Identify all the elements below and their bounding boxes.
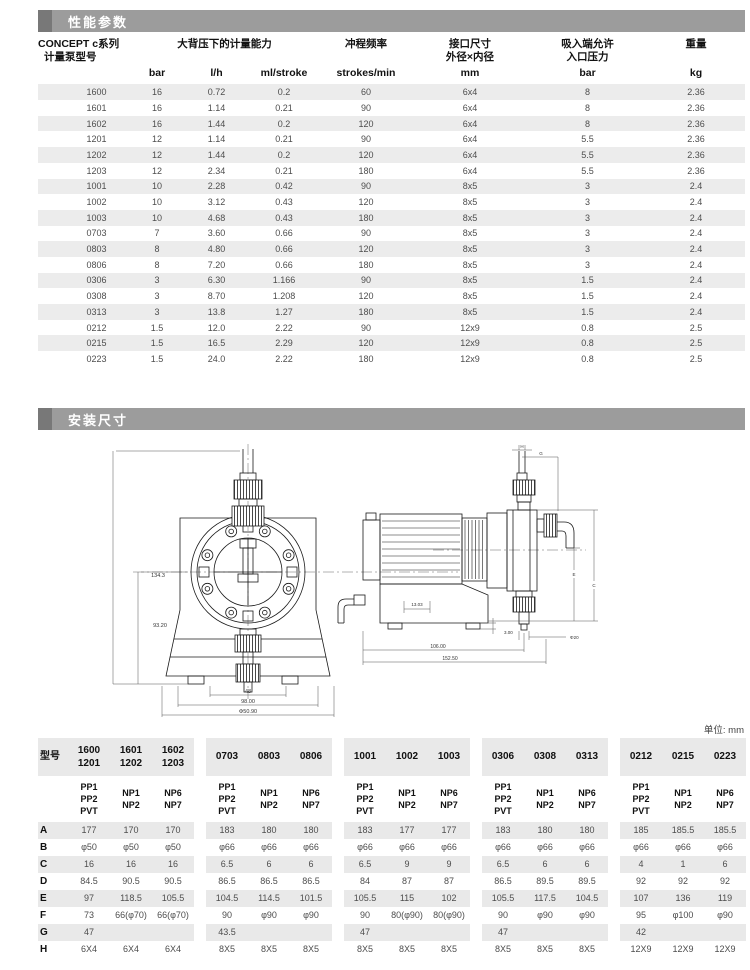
- perf-value-cell: 10: [129, 210, 185, 226]
- dim-material-cell: NP6 NP7: [704, 776, 746, 822]
- dim-value-cell: 180: [524, 822, 566, 839]
- dim-table-row: A177170170183180180183177177183180180185…: [38, 822, 746, 839]
- perf-value-cell: 2.34: [185, 163, 248, 179]
- perf-value-cell: 2.36: [647, 100, 745, 116]
- perf-model-cell: 0212: [38, 320, 129, 336]
- dim-table-row: PP1 PP2 PVTNP1 NP2NP6 NP7PP1 PP2 PVTNP1 …: [38, 776, 746, 822]
- perf-table-row: 1001102.280.42908x532.4: [38, 179, 745, 195]
- dim-table-row: C1616166.5666.5996.566416: [38, 856, 746, 873]
- dim-value-cell: 73: [68, 907, 110, 924]
- dim-table-row: F7366(φ70)66(φ70)90φ90φ909080(φ90)80(φ90…: [38, 907, 746, 924]
- column-gap: [194, 941, 206, 958]
- perf-value-cell: 2.36: [647, 116, 745, 132]
- perf-table-row: 0313313.81.271808x51.52.4: [38, 304, 745, 320]
- perf-stroke-header: 冲程频率: [320, 36, 412, 66]
- performance-section-title: 性能参数: [52, 12, 128, 31]
- dim-model-cell: 1003: [428, 738, 470, 776]
- perf-value-cell: 4.68: [185, 210, 248, 226]
- perf-value-cell: 120: [320, 335, 412, 351]
- dim-value-cell: [110, 924, 152, 941]
- unit-bar2: bar: [528, 66, 647, 84]
- section-header-installation: 安装尺寸: [38, 408, 745, 430]
- perf-value-cell: 12: [129, 131, 185, 147]
- dim-model-cell: 0308: [524, 738, 566, 776]
- perf-value-cell: 8x5: [412, 304, 528, 320]
- perf-value-cell: 7.20: [185, 257, 248, 273]
- column-gap: [194, 822, 206, 839]
- perf-value-cell: 5.5: [528, 131, 647, 147]
- dim-material-cell: NP6 NP7: [566, 776, 608, 822]
- dim-value-cell: 114.5: [248, 890, 290, 907]
- perf-value-cell: 0.66: [248, 241, 320, 257]
- perf-table-row: 02231.524.02.2218012x90.82.5: [38, 351, 745, 367]
- perf-value-cell: 2.36: [647, 147, 745, 163]
- perf-value-cell: 180: [320, 304, 412, 320]
- dim-value-cell: 47: [344, 924, 386, 941]
- dim-value-cell: 185.5: [662, 822, 704, 839]
- dim-label-body-length: 106.00: [430, 644, 446, 650]
- dim-value-cell: 6: [566, 856, 608, 873]
- perf-value-cell: 1.208: [248, 288, 320, 304]
- column-gap: [608, 738, 620, 776]
- dim-label-feet-width: 98.00: [241, 699, 255, 705]
- dim-value-cell: 8X5: [482, 941, 524, 958]
- perf-value-cell: 3: [129, 288, 185, 304]
- dim-value-cell: 80(φ90): [428, 907, 470, 924]
- perf-value-cell: 0.2: [248, 147, 320, 163]
- perf-value-cell: 90: [320, 131, 412, 147]
- perf-value-cell: 16: [129, 100, 185, 116]
- perf-value-cell: 1.5: [528, 304, 647, 320]
- perf-value-cell: 8: [129, 257, 185, 273]
- perf-model-cell: 1601: [38, 100, 129, 116]
- dim-value-cell: 90: [206, 907, 248, 924]
- dim-value-cell: 42: [620, 924, 662, 941]
- dim-value-cell: 90.5: [152, 873, 194, 890]
- dimension-table: 型号1600 12011601 12021602 120307030803080…: [38, 738, 746, 958]
- column-gap: [194, 890, 206, 907]
- column-gap: [194, 839, 206, 856]
- dim-label-inner-offset: 13.03: [411, 602, 423, 607]
- dim-row-label: G: [38, 924, 68, 941]
- perf-value-cell: 6x4: [412, 116, 528, 132]
- dim-value-cell: [662, 924, 704, 941]
- dim-value-cell: 6: [290, 856, 332, 873]
- perf-suction-header: 吸入端允许 入口压力: [528, 36, 647, 66]
- dim-value-cell: 105.5: [152, 890, 194, 907]
- perf-value-cell: 2.4: [647, 226, 745, 242]
- dim-label-total-height: 134.3: [151, 573, 165, 579]
- perf-value-cell: 2.36: [647, 163, 745, 179]
- dim-value-cell: 16: [110, 856, 152, 873]
- dim-value-cell: 107: [620, 890, 662, 907]
- dim-value-cell: φ66: [704, 839, 746, 856]
- section-title-bar: 性能参数: [52, 10, 745, 32]
- dim-value-cell: 170: [110, 822, 152, 839]
- dim-material-cell: NP1 NP2: [662, 776, 704, 822]
- dim-value-cell: φ100: [662, 907, 704, 924]
- column-gap: [470, 924, 482, 941]
- perf-value-cell: 180: [320, 257, 412, 273]
- perf-value-cell: 8x5: [412, 273, 528, 289]
- perf-value-cell: 3: [528, 179, 647, 195]
- perf-value-cell: 6.30: [185, 273, 248, 289]
- dim-value-cell: φ66: [386, 839, 428, 856]
- dim-value-cell: 47: [482, 924, 524, 941]
- perf-weight-header: 重量: [647, 36, 745, 66]
- perf-value-cell: 1.14: [185, 131, 248, 147]
- perf-model-cell: 0703: [38, 226, 129, 242]
- dim-material-cell: NP6 NP7: [152, 776, 194, 822]
- perf-table-row: 1203122.340.211806x45.52.36: [38, 163, 745, 179]
- dim-value-cell: φ90: [566, 907, 608, 924]
- dim-label-foot-height: 3.00: [504, 630, 513, 635]
- perf-value-cell: 8x5: [412, 288, 528, 304]
- dim-value-cell: [290, 924, 332, 941]
- dim-value-cell: 8X5: [290, 941, 332, 958]
- dim-value-cell: [152, 924, 194, 941]
- installation-section-title: 安装尺寸: [52, 410, 128, 429]
- perf-table-row: 070373.600.66908x532.4: [38, 226, 745, 242]
- dim-value-cell: 170: [152, 822, 194, 839]
- perf-value-cell: 2.4: [647, 304, 745, 320]
- perf-value-cell: 2.4: [647, 273, 745, 289]
- dim-value-cell: 84: [344, 873, 386, 890]
- column-gap: [332, 924, 344, 941]
- perf-value-cell: 12: [129, 147, 185, 163]
- dim-value-cell: 89.5: [524, 873, 566, 890]
- dim-value-cell: 12X9: [662, 941, 704, 958]
- dim-value-cell: 92: [620, 873, 662, 890]
- column-gap: [194, 873, 206, 890]
- dim-label-g: G: [539, 451, 543, 456]
- section-title-bar: 安装尺寸: [52, 408, 745, 430]
- perf-value-cell: 8: [528, 84, 647, 100]
- perf-value-cell: 8: [528, 116, 647, 132]
- perf-value-cell: 1.44: [185, 147, 248, 163]
- perf-value-cell: 0.43: [248, 194, 320, 210]
- dim-value-cell: 90: [482, 907, 524, 924]
- column-gap: [608, 822, 620, 839]
- perf-table-row: 030838.701.2081208x51.52.4: [38, 288, 745, 304]
- perf-model-cell: 1602: [38, 116, 129, 132]
- perf-model-cell: 0806: [38, 257, 129, 273]
- perf-value-cell: 0.42: [248, 179, 320, 195]
- perf-value-cell: 8x5: [412, 241, 528, 257]
- column-gap: [332, 890, 344, 907]
- perf-model-cell: 1201: [38, 131, 129, 147]
- dim-value-cell: 102: [428, 890, 470, 907]
- perf-value-cell: 10: [129, 179, 185, 195]
- perf-table-row: 030636.301.166908x51.52.4: [38, 273, 745, 289]
- perf-value-cell: 3.60: [185, 226, 248, 242]
- dim-table-row: D84.590.590.586.586.586.584878786.589.58…: [38, 873, 746, 890]
- perf-capacity-header: 大背压下的计量能力: [129, 36, 320, 66]
- dim-value-cell: 177: [68, 822, 110, 839]
- dim-value-cell: 6X4: [68, 941, 110, 958]
- perf-table-row: 1601161.140.21906x482.36: [38, 100, 745, 116]
- perf-value-cell: 16: [129, 116, 185, 132]
- perf-value-cell: 0.8: [528, 335, 647, 351]
- perf-value-cell: 8x5: [412, 226, 528, 242]
- dim-value-cell: 66(φ70): [110, 907, 152, 924]
- dim-value-cell: 105.5: [482, 890, 524, 907]
- dim-table-row: 型号1600 12011601 12021602 120307030803080…: [38, 738, 746, 776]
- perf-value-cell: 12.0: [185, 320, 248, 336]
- perf-model-header: CONCEPT c系列 计量泵型号: [38, 36, 129, 84]
- perf-value-cell: 2.4: [647, 288, 745, 304]
- perf-value-cell: 0.2: [248, 116, 320, 132]
- dim-material-cell: NP1 NP2: [524, 776, 566, 822]
- perf-value-cell: 2.22: [248, 320, 320, 336]
- dim-value-cell: 6.5: [206, 856, 248, 873]
- dim-row-label: D: [38, 873, 68, 890]
- perf-value-cell: 0.66: [248, 257, 320, 273]
- dim-value-cell: 12X9: [620, 941, 662, 958]
- dim-value-cell: 92: [704, 873, 746, 890]
- dim-value-cell: φ90: [704, 907, 746, 924]
- perf-value-cell: 120: [320, 116, 412, 132]
- dim-value-cell: φ66: [428, 839, 470, 856]
- dim-value-cell: 89.5: [566, 873, 608, 890]
- perf-value-cell: 0.21: [248, 100, 320, 116]
- dim-value-cell: 43.5: [206, 924, 248, 941]
- dim-value-cell: 105.5: [344, 890, 386, 907]
- dim-value-cell: 185.5: [704, 822, 746, 839]
- perf-value-cell: 1.44: [185, 116, 248, 132]
- dim-value-cell: φ66: [566, 839, 608, 856]
- perf-table-row: 1002103.120.431208x532.4: [38, 194, 745, 210]
- perf-value-cell: 6x4: [412, 84, 528, 100]
- column-gap: [194, 907, 206, 924]
- perf-model-cell: 0308: [38, 288, 129, 304]
- perf-model-header-line2: 计量泵型号: [38, 51, 129, 64]
- unit-mlstroke: ml/stroke: [248, 66, 320, 84]
- column-gap: [470, 776, 482, 822]
- dim-label-h: H: [520, 444, 523, 449]
- perf-value-cell: 12x9: [412, 320, 528, 336]
- dim-value-cell: φ66: [620, 839, 662, 856]
- perf-value-cell: 12: [129, 163, 185, 179]
- dim-value-cell: 16: [152, 856, 194, 873]
- perf-value-cell: 2.28: [185, 179, 248, 195]
- dim-value-cell: 87: [386, 873, 428, 890]
- installation-drawings: 134.3 93.20 48 98.00 Φ50.90: [38, 443, 745, 720]
- dim-value-cell: φ66: [290, 839, 332, 856]
- perf-value-cell: 60: [320, 84, 412, 100]
- dim-value-cell: 136: [662, 890, 704, 907]
- perf-header-row: CONCEPT c系列 计量泵型号 大背压下的计量能力 冲程频率 接口尺寸 外径…: [38, 36, 745, 66]
- perf-value-cell: 24.0: [185, 351, 248, 367]
- perf-value-cell: 1.27: [248, 304, 320, 320]
- dim-row-label: A: [38, 822, 68, 839]
- perf-value-cell: 90: [320, 100, 412, 116]
- dim-value-cell: φ66: [344, 839, 386, 856]
- perf-table-row: 080687.200.661808x532.4: [38, 257, 745, 273]
- dim-value-cell: 86.5: [248, 873, 290, 890]
- dim-value-cell: 84.5: [68, 873, 110, 890]
- column-gap: [194, 776, 206, 822]
- perf-value-cell: 4.80: [185, 241, 248, 257]
- perf-value-cell: 0.21: [248, 163, 320, 179]
- dim-label-e: E: [572, 572, 575, 577]
- front-view-dimensions: [113, 451, 334, 717]
- dim-table-row: H6X46X46X48X58X58X58X58X58X58X58X58X512X…: [38, 941, 746, 958]
- perf-model-cell: 0223: [38, 351, 129, 367]
- perf-value-cell: 90: [320, 320, 412, 336]
- perf-value-cell: 6x4: [412, 147, 528, 163]
- column-gap: [470, 890, 482, 907]
- dim-value-cell: φ66: [248, 839, 290, 856]
- dim-table-row: E97118.5105.5104.5114.5101.5105.51151021…: [38, 890, 746, 907]
- perf-model-header-line1: CONCEPT c系列: [38, 38, 129, 51]
- column-gap: [470, 873, 482, 890]
- dim-value-cell: 16: [68, 856, 110, 873]
- perf-value-cell: 0.72: [185, 84, 248, 100]
- dim-value-cell: 95: [620, 907, 662, 924]
- column-gap: [608, 890, 620, 907]
- dim-value-cell: 1: [662, 856, 704, 873]
- perf-model-cell: 0215: [38, 335, 129, 351]
- perf-value-cell: 2.5: [647, 351, 745, 367]
- perf-value-cell: 2.22: [248, 351, 320, 367]
- dim-value-cell: [386, 924, 428, 941]
- dim-value-cell: 104.5: [566, 890, 608, 907]
- perf-value-cell: 0.2: [248, 84, 320, 100]
- perf-model-cell: 1001: [38, 179, 129, 195]
- installation-drawings-container: 134.3 93.20 48 98.00 Φ50.90: [38, 443, 745, 720]
- perf-value-cell: 2.29: [248, 335, 320, 351]
- perf-model-cell: 0313: [38, 304, 129, 320]
- perf-value-cell: 2.4: [647, 194, 745, 210]
- unit-strokesmin: strokes/min: [320, 66, 412, 84]
- dim-value-cell: φ50: [68, 839, 110, 856]
- perf-value-cell: 0.43: [248, 210, 320, 226]
- dim-value-cell: 177: [428, 822, 470, 839]
- dimension-table-container: 型号1600 12011601 12021602 120307030803080…: [38, 738, 746, 958]
- perf-model-cell: 1202: [38, 147, 129, 163]
- dim-value-cell: 118.5: [110, 890, 152, 907]
- dim-material-cell: NP6 NP7: [290, 776, 332, 822]
- perf-table-row: 080384.800.661208x532.4: [38, 241, 745, 257]
- perf-value-cell: 3: [129, 304, 185, 320]
- dim-model-cell: 0313: [566, 738, 608, 776]
- perf-value-cell: 12x9: [412, 335, 528, 351]
- dim-value-cell: 66(φ70): [152, 907, 194, 924]
- dim-table-row: G4743.5474742: [38, 924, 746, 941]
- perf-value-cell: 8: [129, 241, 185, 257]
- dim-model-cell: 1600 1201: [68, 738, 110, 776]
- perf-value-cell: 8x5: [412, 194, 528, 210]
- dim-value-cell: 47: [68, 924, 110, 941]
- dim-value-cell: φ50: [152, 839, 194, 856]
- dim-value-cell: [566, 924, 608, 941]
- perf-value-cell: 2.4: [647, 241, 745, 257]
- dim-row-label: E: [38, 890, 68, 907]
- perf-value-cell: 5.5: [528, 163, 647, 179]
- perf-value-cell: 2.36: [647, 84, 745, 100]
- dim-value-cell: 97: [68, 890, 110, 907]
- perf-value-cell: 10: [129, 194, 185, 210]
- dim-value-cell: 117.5: [524, 890, 566, 907]
- dim-material-cell: NP1 NP2: [110, 776, 152, 822]
- column-gap: [332, 822, 344, 839]
- dim-value-cell: 180: [290, 822, 332, 839]
- dim-row-label: F: [38, 907, 68, 924]
- perf-value-cell: 2.4: [647, 210, 745, 226]
- dim-model-cell: 0215: [662, 738, 704, 776]
- dim-value-cell: 86.5: [206, 873, 248, 890]
- perf-value-cell: 2.4: [647, 179, 745, 195]
- dim-value-cell: 177: [386, 822, 428, 839]
- perf-value-cell: 3: [528, 194, 647, 210]
- column-gap: [332, 839, 344, 856]
- column-gap: [470, 907, 482, 924]
- dim-row-label: B: [38, 839, 68, 856]
- dim-value-cell: [524, 924, 566, 941]
- dim-value-cell: 8X5: [428, 941, 470, 958]
- perf-value-cell: 5.5: [528, 147, 647, 163]
- unit-bar: bar: [129, 66, 185, 84]
- perf-value-cell: 0.21: [248, 131, 320, 147]
- dim-value-cell: 180: [566, 822, 608, 839]
- column-gap: [470, 738, 482, 776]
- dim-value-cell: 8X5: [566, 941, 608, 958]
- perf-table-row: 1602161.440.21206x482.36: [38, 116, 745, 132]
- side-view-drawing: [338, 451, 586, 630]
- column-gap: [608, 776, 620, 822]
- dim-material-cell: PP1 PP2 PVT: [620, 776, 662, 822]
- performance-table: CONCEPT c系列 计量泵型号 大背压下的计量能力 冲程频率 接口尺寸 外径…: [38, 36, 745, 367]
- dim-label-base-width: Φ50.90: [239, 709, 257, 715]
- column-gap: [332, 856, 344, 873]
- perf-value-cell: 8x5: [412, 210, 528, 226]
- perf-value-cell: 8x5: [412, 257, 528, 273]
- perf-value-cell: 6x4: [412, 163, 528, 179]
- perf-value-cell: 3: [528, 241, 647, 257]
- dim-value-cell: 12X9: [704, 941, 746, 958]
- dim-value-cell: 119: [704, 890, 746, 907]
- dim-table-row: Bφ50φ50φ50φ66φ66φ66φ66φ66φ66φ66φ66φ66φ66…: [38, 839, 746, 856]
- dim-table-corner-label: 型号: [38, 738, 68, 776]
- perf-value-cell: 0.66: [248, 226, 320, 242]
- dim-model-cell: 0223: [704, 738, 746, 776]
- perf-value-cell: 1.5: [129, 351, 185, 367]
- dim-value-cell: φ90: [524, 907, 566, 924]
- dim-material-cell: PP1 PP2 PVT: [482, 776, 524, 822]
- perf-value-cell: 2.5: [647, 335, 745, 351]
- dim-value-cell: φ66: [524, 839, 566, 856]
- dim-material-cell: NP1 NP2: [386, 776, 428, 822]
- column-gap: [332, 873, 344, 890]
- perf-value-cell: 120: [320, 194, 412, 210]
- column-gap: [608, 907, 620, 924]
- dim-model-cell: 0806: [290, 738, 332, 776]
- dim-material-cell: PP1 PP2 PVT: [344, 776, 386, 822]
- column-gap: [470, 822, 482, 839]
- dim-model-cell: 0212: [620, 738, 662, 776]
- dim-model-cell: 1601 1202: [110, 738, 152, 776]
- perf-value-cell: 8.70: [185, 288, 248, 304]
- perf-value-cell: 1.166: [248, 273, 320, 289]
- dim-model-cell: 1001: [344, 738, 386, 776]
- column-gap: [470, 856, 482, 873]
- dim-value-cell: 90.5: [110, 873, 152, 890]
- perf-value-cell: 2.4: [647, 257, 745, 273]
- perf-value-cell: 13.8: [185, 304, 248, 320]
- dim-value-cell: 87: [428, 873, 470, 890]
- perf-value-cell: 7: [129, 226, 185, 242]
